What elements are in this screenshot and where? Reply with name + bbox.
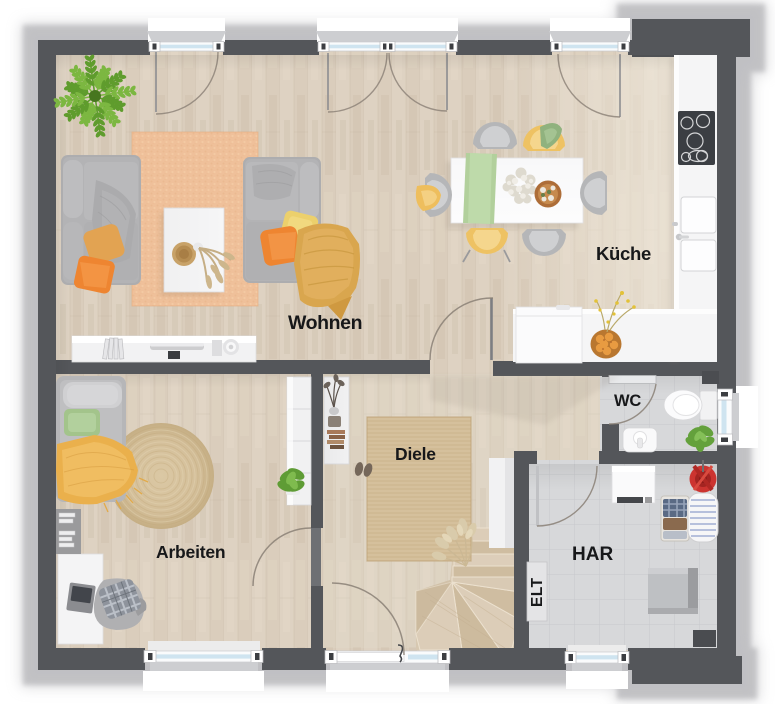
svg-text:WC: WC [614,392,641,410]
svg-text:Wohnen: Wohnen [288,312,362,334]
svg-text:HAR: HAR [572,544,613,565]
svg-text:Küche: Küche [596,243,651,264]
svg-text:ELT: ELT [529,577,546,607]
svg-text:Arbeiten: Arbeiten [156,542,225,562]
svg-text:Diele: Diele [395,444,436,464]
